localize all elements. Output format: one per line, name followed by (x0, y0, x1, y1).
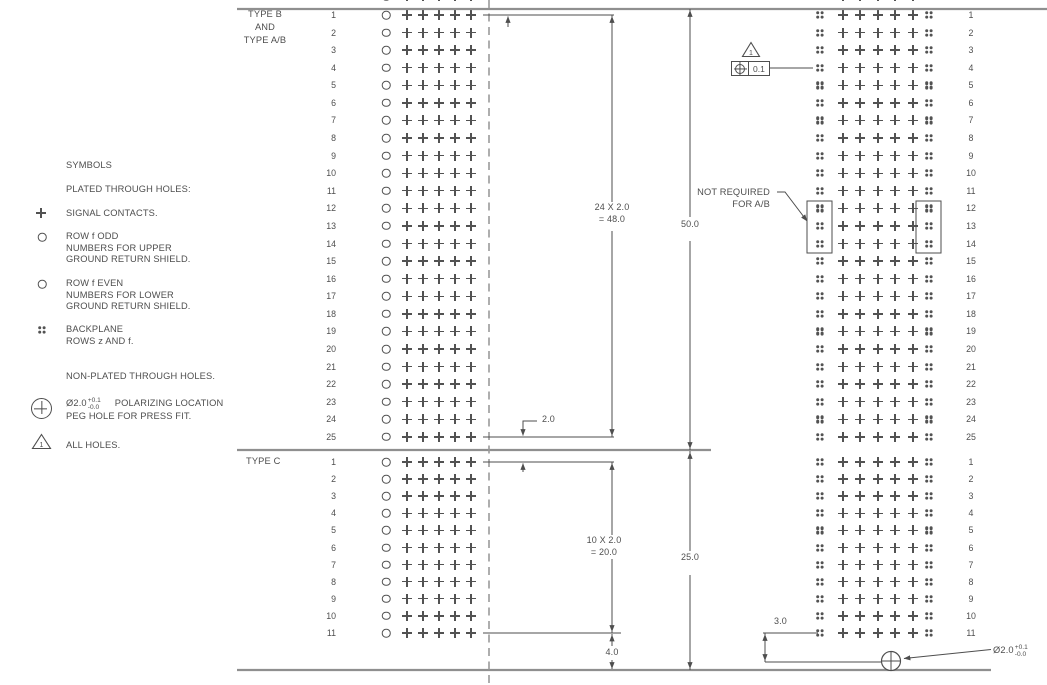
position-tolerance-value: 0.1 (749, 64, 769, 74)
engineering-drawing: 1122334455667788991010111112121313141415… (0, 0, 1047, 685)
peg-description: POLARIZING LOCATION (115, 398, 224, 410)
dim-type-b-pitch: 24 X 2.0 = 48.0 (593, 202, 632, 225)
legend-all-holes-line: ALL HOLES. (66, 440, 120, 452)
legend-plated-heading: PLATED THROUGH HOLES: (66, 184, 191, 196)
legend-row-odd-line: GROUND RETURN SHIELD. (66, 254, 191, 266)
legend-backplane-line: BACKPLANE (66, 324, 123, 336)
flag-number: 1 (741, 50, 761, 57)
legend-row-odd-line: ROW f ODD (66, 231, 118, 243)
dim-type-b-height: 50.0 (679, 219, 701, 231)
legend-row-even-line: ROW f EVEN (66, 278, 123, 290)
peg-tolerance: +0.1-0.0 (1015, 645, 1028, 658)
legend-peg-line1: Ø2.0+0.1-0.0POLARIZING LOCATION (66, 398, 223, 411)
legend-backplane-line: ROWS z AND f. (66, 336, 134, 348)
peg-hole-label: Ø2.0+0.1-0.0 (993, 645, 1028, 658)
legend-signal-line: SIGNAL CONTACTS. (66, 208, 158, 220)
dimension-linework (0, 0, 1047, 685)
peg-tolerance: +0.1-0.0 (88, 398, 101, 411)
dim-peg-offset: 3.0 (772, 616, 789, 628)
upper-ground-shield-icon (38, 233, 47, 242)
peg-diameter: Ø2.0 (993, 645, 1014, 657)
legend-nonplated-heading: NON-PLATED THROUGH HOLES. (66, 371, 215, 383)
legend-row-even-line: GROUND RETURN SHIELD. (66, 301, 191, 313)
legend-peg-line2: PEG HOLE FOR PRESS FIT. (66, 411, 191, 423)
peg-diameter: Ø2.0 (66, 398, 87, 410)
signal-contact-icon (36, 208, 46, 218)
flag-number: 1 (31, 442, 52, 449)
not-required-callout: NOT REQUIRED FOR A/B (688, 186, 770, 210)
legend-row-even-line: NUMBERS FOR LOWER (66, 290, 174, 302)
dim-row-gap: 2.0 (540, 414, 557, 426)
all-holes-flag-icon: 1 (31, 433, 52, 450)
dim-type-c-height: 25.0 (679, 552, 701, 564)
fcf-flag-icon: 1 (741, 41, 761, 58)
polarizing-peg-icon (31, 398, 52, 419)
legend-row-odd-line: NUMBERS FOR UPPER (66, 243, 172, 255)
section-label-type-c: TYPE C (246, 456, 280, 468)
backplane-hole-icon (38, 326, 46, 334)
section-label-type-b: TYPE B AND TYPE A/B (237, 8, 293, 47)
dim-type-c-pitch: 10 X 2.0 = 20.0 (585, 535, 624, 558)
dim-bottom-offset: 4.0 (604, 647, 621, 659)
feature-control-frame: 0.1 (731, 61, 770, 76)
position-symbol-icon (732, 62, 749, 75)
lower-ground-shield-icon (38, 280, 47, 289)
legend-title: SYMBOLS (66, 160, 112, 172)
